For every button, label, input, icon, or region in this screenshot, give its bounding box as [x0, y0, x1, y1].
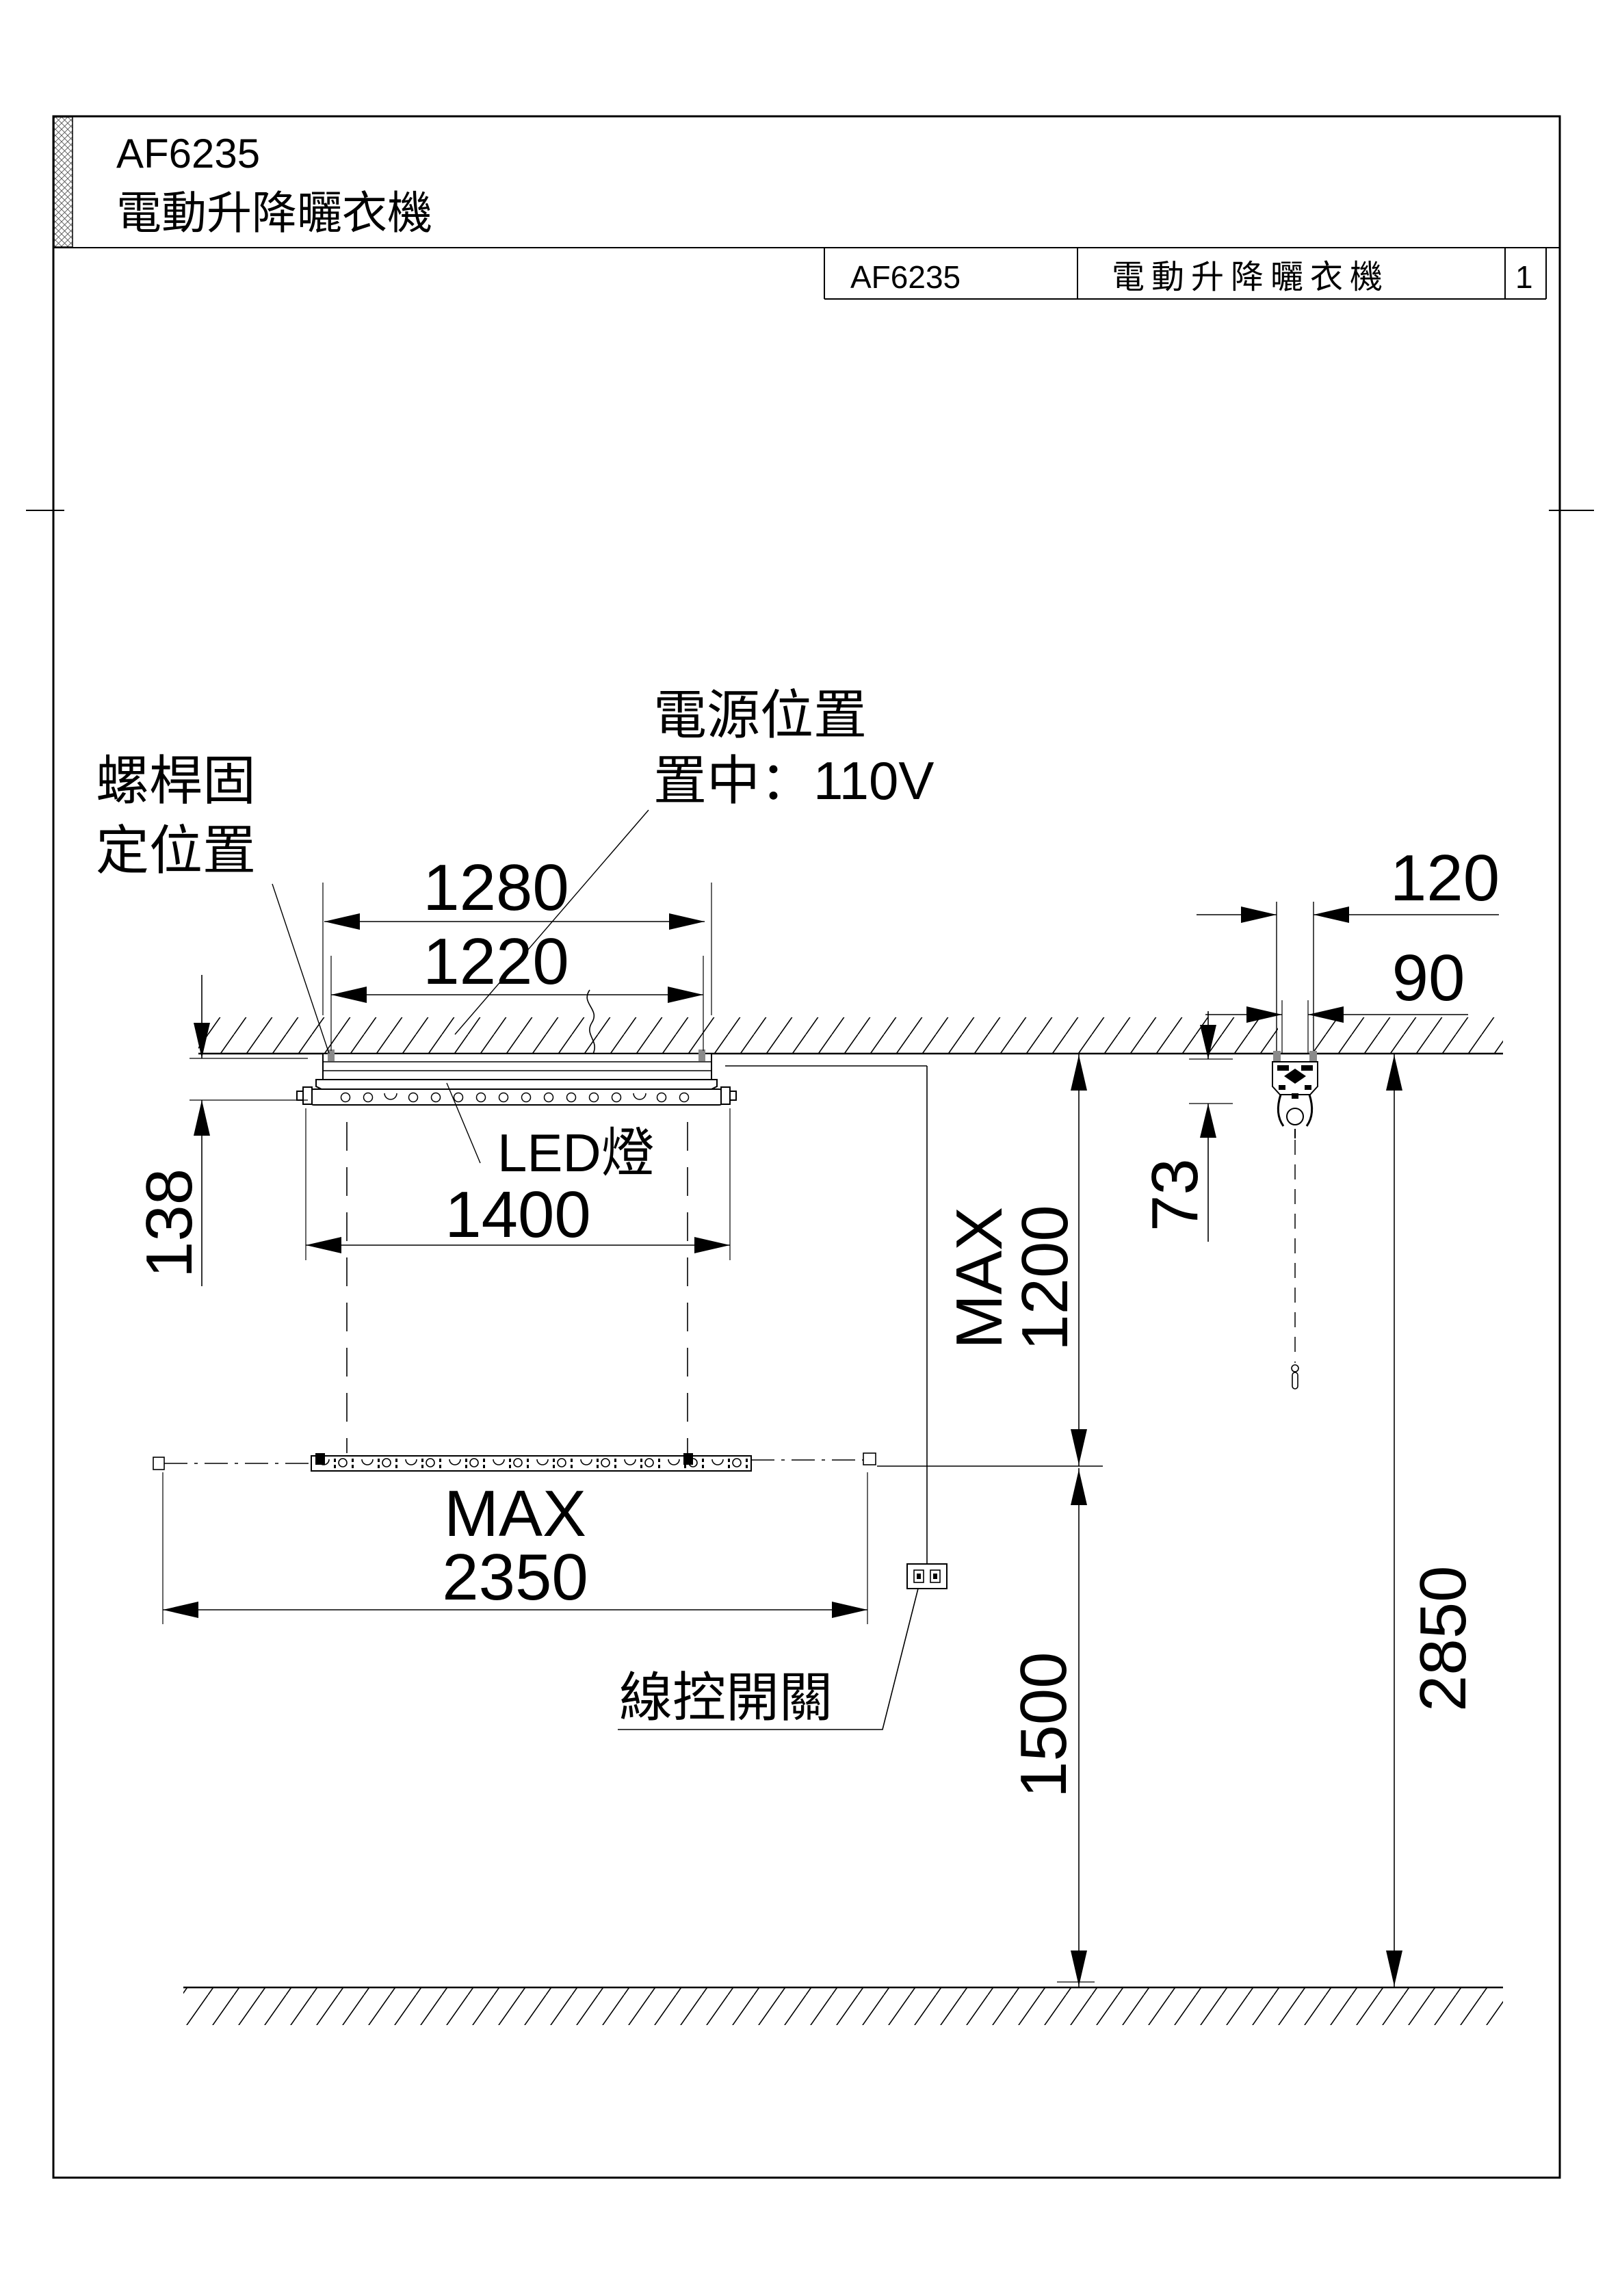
floor-hatch [183, 1987, 1503, 2025]
title-block-model: AF6235 [850, 259, 961, 295]
screw-position-label-group: 螺桿固 定位置 [96, 751, 329, 1054]
dim-max1200-line2: 1200 [1008, 1205, 1082, 1351]
dim-max2350-line2: 2350 [442, 1541, 588, 1614]
drawing-page: AF6235 電動升降曬衣機 AF6235 電動升降曬衣機 1 [0, 0, 1620, 2296]
motor-side-view [1272, 902, 1318, 1389]
power-label-line2: 置中：110V [653, 751, 934, 811]
right-fixing-screw [698, 1049, 705, 1061]
page-header: AF6235 電動升降曬衣機 [116, 131, 432, 238]
dim-rack-max-width: MAX 2350 [163, 1472, 867, 1624]
dim-switch-height: 1500 [1007, 1468, 1087, 1987]
dim-1400-text: 1400 [445, 1178, 591, 1251]
chain-handle [1292, 1372, 1298, 1389]
dim-total-height: 2850 [1386, 1054, 1480, 1987]
drying-unit-front-view [297, 1049, 736, 1105]
dim-side-offset-inner: 90 [1205, 941, 1468, 1023]
ceiling [198, 1016, 1503, 1054]
screw-position-label-line2: 定位置 [96, 820, 256, 880]
title-block: AF6235 電動升降曬衣機 1 [824, 248, 1546, 299]
right-end-cap [721, 1087, 730, 1104]
led-label: LED燈 [497, 1123, 655, 1183]
screw-position-label-line1: 螺桿固 [96, 751, 256, 811]
hanger-bar [153, 1453, 1103, 1471]
hanger-rail [311, 1456, 751, 1471]
page-frame [26, 116, 1594, 2178]
dim-138-text: 138 [133, 1169, 206, 1278]
dim-side-offset: 120 [1197, 842, 1500, 923]
switch-label: 線控開關 [619, 1667, 833, 1727]
dim-1280-text: 1280 [423, 851, 569, 924]
dim-120-text: 120 [1390, 842, 1500, 915]
technical-drawing: AF6235 電動升降曬衣機 AF6235 電動升降曬衣機 1 [0, 0, 1620, 2296]
dim-max1200-line1: MAX [943, 1207, 1016, 1349]
trim-hatch-bar [54, 117, 73, 247]
header-product-name: 電動升降曬衣機 [116, 187, 432, 238]
dim-73-text: 73 [1138, 1158, 1212, 1231]
left-end-cap [303, 1087, 312, 1104]
dim-1500-text: 1500 [1007, 1652, 1080, 1798]
dim-2850-text: 2850 [1407, 1565, 1480, 1712]
dim-90-text: 90 [1392, 941, 1465, 1015]
power-label-line1: 電源位置 [653, 685, 867, 745]
title-block-page-number: 1 [1515, 259, 1533, 295]
header-model: AF6235 [116, 131, 260, 177]
floor [183, 1982, 1503, 2025]
title-block-name: 電動升降曬衣機 [1112, 259, 1389, 296]
dim-drop-max: MAX 1200 [943, 1054, 1087, 1466]
dim-max2350-line1: MAX [444, 1477, 586, 1550]
